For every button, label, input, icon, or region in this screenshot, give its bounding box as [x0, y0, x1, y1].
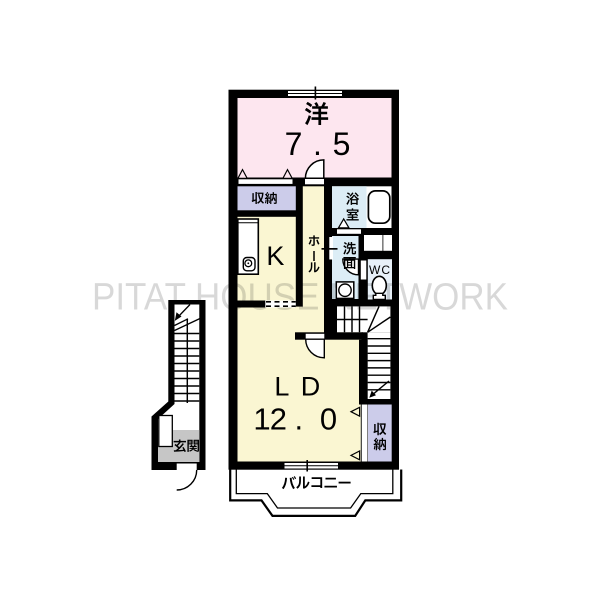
svg-text:7.5: 7.5 [285, 126, 351, 162]
svg-text:WC: WC [369, 263, 391, 277]
svg-text:K: K [266, 241, 284, 271]
svg-text:12.0: 12.0 [253, 402, 337, 437]
svg-text:L: L [274, 372, 289, 402]
svg-text:D: D [301, 372, 321, 402]
svg-text:PITAT HOUSE NETWORK: PITAT HOUSE NETWORK [92, 277, 508, 319]
